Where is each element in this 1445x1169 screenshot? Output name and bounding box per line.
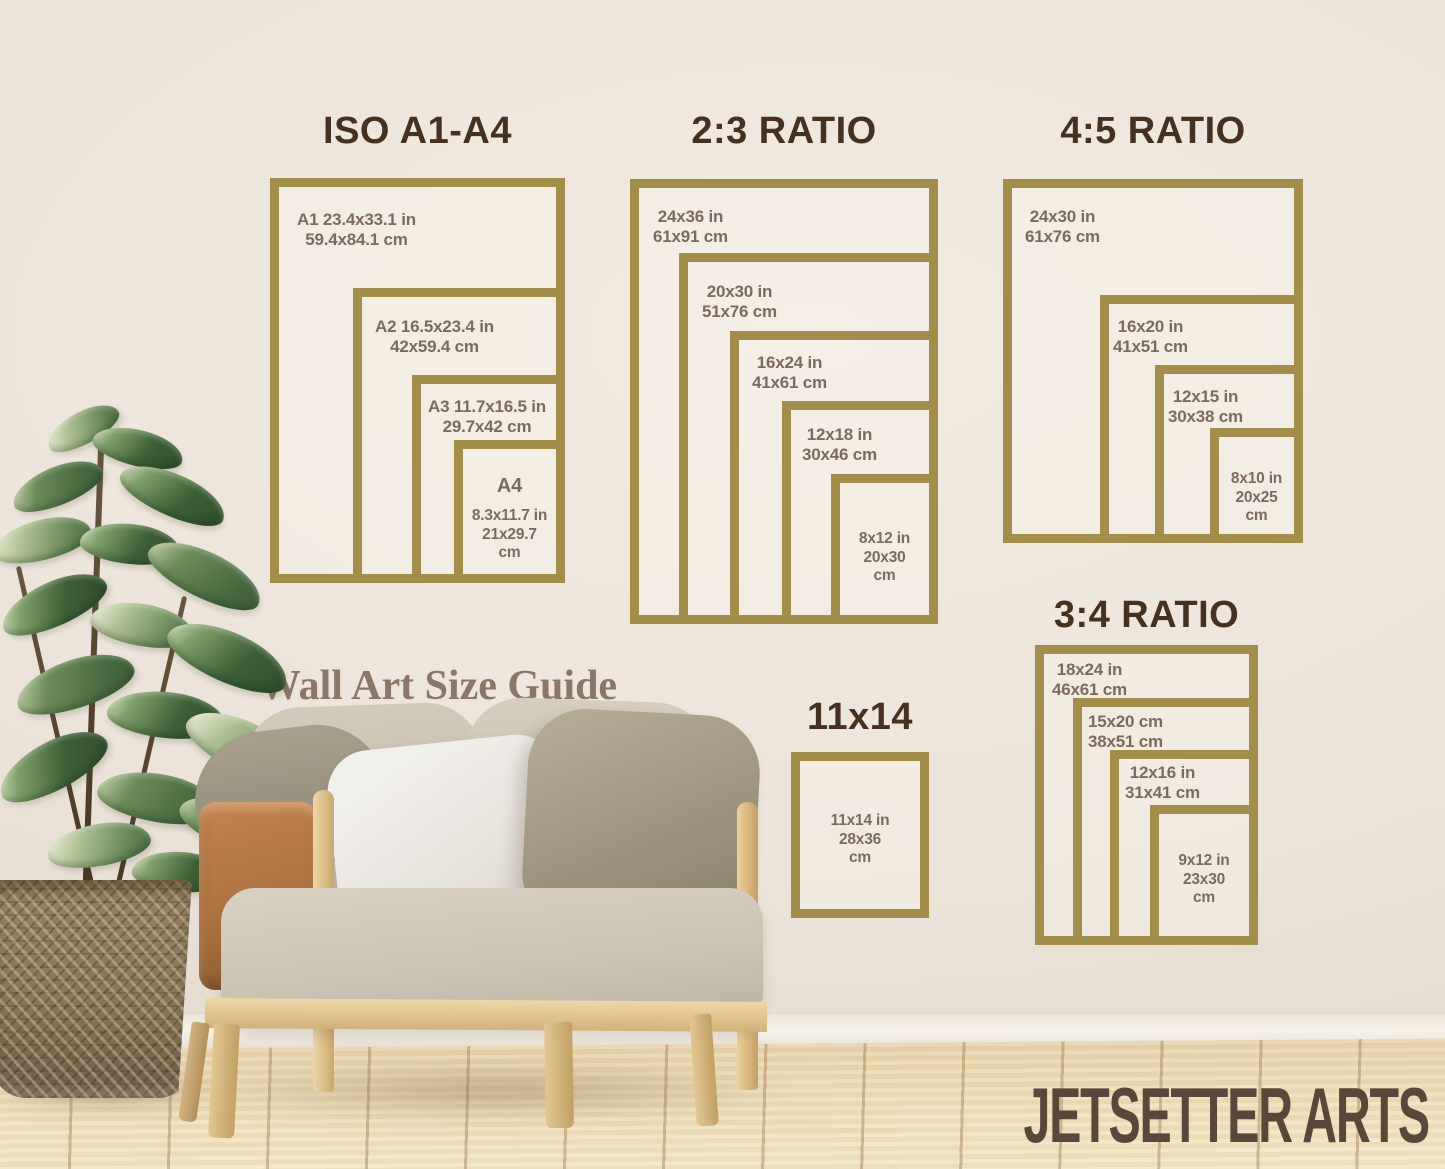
size-group-11x14: 11x14 11x14 in 28x36 cm <box>791 698 929 738</box>
size-label-8x10: 8x10 in 20x25 cm <box>1210 470 1303 526</box>
size-label-20x30: 20x30 in51x76 cm <box>702 282 777 323</box>
group-title-iso: ISO A1-A4 <box>270 112 565 152</box>
size-label-a2: A2 16.5x23.4 in42x59.4 cm <box>375 317 494 358</box>
woven-basket-planter <box>0 880 192 1098</box>
ratio-2-3-frames: 24x36 in61x91 cm 20x30 in51x76 cm 16x24 … <box>630 179 938 624</box>
group-title-2-3: 2:3 RATIO <box>630 112 938 152</box>
size-label-a1: A1 23.4x33.1 in59.4x84.1 cm <box>297 210 416 251</box>
size-label-24x36: 24x36 in61x91 cm <box>653 207 728 248</box>
brand-wordmark: JETSETTER ARTS <box>1024 1076 1429 1154</box>
size-label-11x14: 11x14 in 28x36 cm <box>791 812 929 868</box>
size-label-12x16: 12x16 in31x41 cm <box>1125 763 1200 804</box>
plant-leaf <box>6 451 108 522</box>
size-group-iso: ISO A1-A4 A1 23.4x33.1 in59.4x84.1 cm A2… <box>270 112 565 152</box>
armchair <box>185 690 770 1138</box>
ratio-4-5-frames: 24x30 in61x76 cm 16x20 in41x51 cm 12x15 … <box>1003 179 1303 543</box>
size-group-3-4: 3:4 RATIO 18x24 in46x61 cm 15x20 cm38x51… <box>1035 596 1258 636</box>
size-label-a4: A4 8.3x11.7 in 21x29.7 cm <box>454 474 565 563</box>
frames-11x14: 11x14 in 28x36 cm <box>791 752 929 918</box>
group-title-11x14: 11x14 <box>791 698 929 738</box>
size-label-18x24: 18x24 in46x61 cm <box>1052 660 1127 701</box>
size-label-a3: A3 11.7x16.5 in29.7x42 cm <box>428 397 546 438</box>
size-label-24x30: 24x30 in61x76 cm <box>1025 207 1100 248</box>
ratio-3-4-frames: 18x24 in46x61 cm 15x20 cm38x51 cm 12x16 … <box>1035 645 1258 945</box>
chair-leg-front-left <box>208 1023 240 1138</box>
size-label-12x18: 12x18 in30x46 cm <box>802 425 877 466</box>
wood-apron-rail <box>205 998 767 1032</box>
size-label-9x12: 9x12 in 23x30 cm <box>1150 852 1258 908</box>
size-label-16x24: 16x24 in41x61 cm <box>752 353 827 394</box>
size-group-2-3: 2:3 RATIO 24x36 in61x91 cm 20x30 in51x76… <box>630 112 938 152</box>
group-title-4-5: 4:5 RATIO <box>1003 112 1303 152</box>
size-group-4-5: 4:5 RATIO 24x30 in61x76 cm 16x20 in41x51… <box>1003 112 1303 152</box>
size-label-15x20: 15x20 cm38x51 cm <box>1088 712 1163 753</box>
size-label-12x15: 12x15 in30x38 cm <box>1168 387 1243 428</box>
chair-leg-front-middle <box>544 1022 574 1128</box>
group-title-3-4: 3:4 RATIO <box>1035 596 1258 636</box>
room-scene: ISO A1-A4 A1 23.4x33.1 in59.4x84.1 cm A2… <box>0 0 1445 1169</box>
size-label-16x20: 16x20 in41x51 cm <box>1113 317 1188 358</box>
size-label-8x12: 8x12 in 20x30 cm <box>831 530 938 586</box>
